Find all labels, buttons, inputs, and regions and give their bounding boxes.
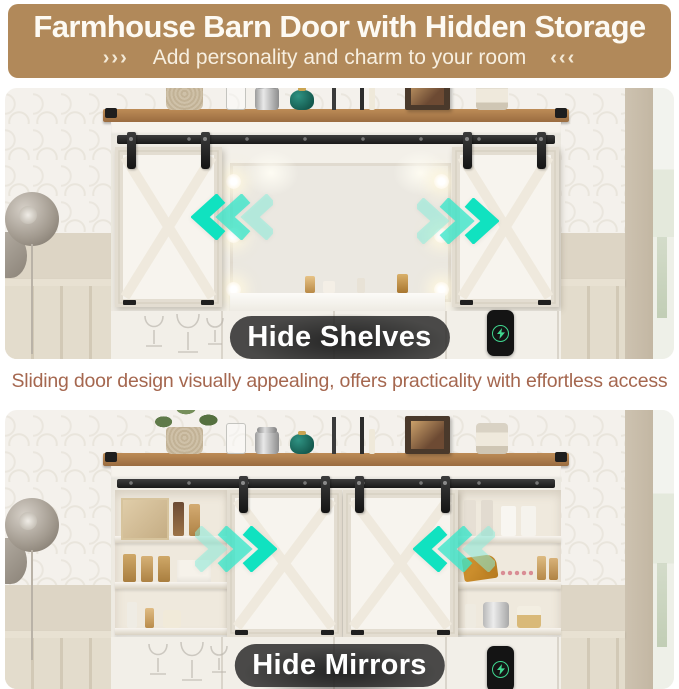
picture-frame (405, 88, 450, 110)
bottle (357, 278, 365, 293)
cream-canister (476, 88, 508, 110)
shelf-board (115, 582, 229, 589)
plant-pot (166, 427, 203, 454)
picture-frame (405, 416, 450, 454)
wall-corner-band (625, 88, 653, 359)
cream-jar (163, 610, 181, 628)
leaning-tray (121, 498, 169, 540)
header-subtitle: Add personality and charm to your room (153, 45, 527, 71)
wall-lamp-icon (5, 192, 59, 359)
perfume-bottle (305, 276, 315, 293)
plant-pot (166, 88, 203, 110)
pump-bottle (501, 506, 516, 536)
perfume-bottle (397, 274, 408, 293)
cabinet-fascia (111, 466, 561, 479)
glass-vase (226, 88, 246, 110)
serum-bottle (549, 558, 558, 580)
header-subtitle-row: ››› Add personality and charm to your ro… (8, 45, 671, 71)
shelf-board (458, 582, 561, 589)
cream-canister (476, 423, 508, 454)
gold-canister (141, 556, 153, 582)
cream-jar (323, 281, 335, 293)
wainscot-right (561, 585, 625, 689)
lightning-icon (492, 661, 509, 678)
teal-jar (290, 434, 314, 454)
wainscot-right (561, 233, 625, 359)
candle-holder (332, 417, 364, 454)
photo-hide-shelves: Hide Shelves (5, 88, 674, 359)
vanity-counter (230, 293, 445, 311)
door-hanger (239, 476, 248, 513)
door-hanger (463, 132, 472, 169)
door-hanger (355, 476, 364, 513)
barn-door-rail (117, 135, 555, 144)
door-hanger (321, 476, 330, 513)
chevron-right-icon: ››› (103, 45, 129, 71)
cabinet-wood-top (103, 453, 569, 466)
stemware-rack (137, 642, 237, 686)
caption-text: Sliding door design visually appealing, … (0, 366, 679, 396)
silver-jar (255, 88, 279, 110)
chevrons-slide-left-icon (413, 526, 495, 572)
door-hanger (201, 132, 210, 169)
door-hanger (441, 476, 450, 513)
wall-lamp-icon (5, 498, 59, 668)
door-hanger (537, 132, 546, 169)
serum-bottle (145, 608, 154, 628)
header-banner: Farmhouse Barn Door with Hidden Storage … (8, 4, 671, 78)
led-bulb (434, 174, 449, 189)
serum-bottle (537, 556, 546, 580)
candle (369, 88, 375, 110)
lightning-icon (492, 325, 509, 342)
metal-bracket (105, 108, 117, 118)
led-bulb (226, 174, 241, 189)
silver-jar (255, 431, 279, 454)
cabinet-fascia (111, 122, 561, 135)
metal-bracket (555, 452, 567, 462)
light-glow (393, 150, 449, 196)
window-strip (653, 410, 674, 689)
shelf-board (115, 628, 229, 635)
label-pill-hide-shelves: Hide Shelves (229, 316, 449, 359)
page-title: Farmhouse Barn Door with Hidden Storage (8, 10, 671, 44)
chevrons-slide-left-icon (191, 194, 273, 240)
light-glow (243, 150, 299, 196)
chevrons-slide-right-icon (195, 526, 277, 572)
teal-jar (290, 90, 314, 110)
chevron-left-icon: ‹‹‹ (550, 45, 576, 71)
silver-jar (483, 602, 509, 628)
candle-jar (517, 606, 541, 628)
window-strip (653, 88, 674, 359)
candle-holder (332, 88, 364, 110)
candle (369, 429, 375, 454)
barn-door-rail (117, 479, 555, 488)
lotion-tube (465, 604, 476, 628)
metal-bracket (105, 452, 117, 462)
product-infographic: Farmhouse Barn Door with Hidden Storage … (0, 0, 679, 689)
wireless-charger (487, 646, 514, 689)
chevrons-slide-right-icon (417, 198, 499, 244)
metal-bracket (555, 108, 567, 118)
stemware-rack (133, 314, 233, 358)
label-pill-hide-mirrors: Hide Mirrors (234, 644, 444, 687)
wall-corner-band (625, 410, 653, 689)
spray-bottle (173, 502, 184, 536)
pump-bottle (521, 506, 536, 536)
gold-canister (123, 554, 136, 582)
bead-necklace (499, 568, 533, 578)
cabinet-wood-top (103, 109, 569, 122)
photo-hide-mirrors: Hide Mirrors (5, 410, 674, 689)
gold-canister (158, 556, 170, 582)
glass-vase (226, 423, 246, 454)
wireless-charger (487, 310, 514, 356)
door-hanger (127, 132, 136, 169)
shelf-board (458, 628, 561, 635)
lotion-tube (127, 602, 137, 628)
